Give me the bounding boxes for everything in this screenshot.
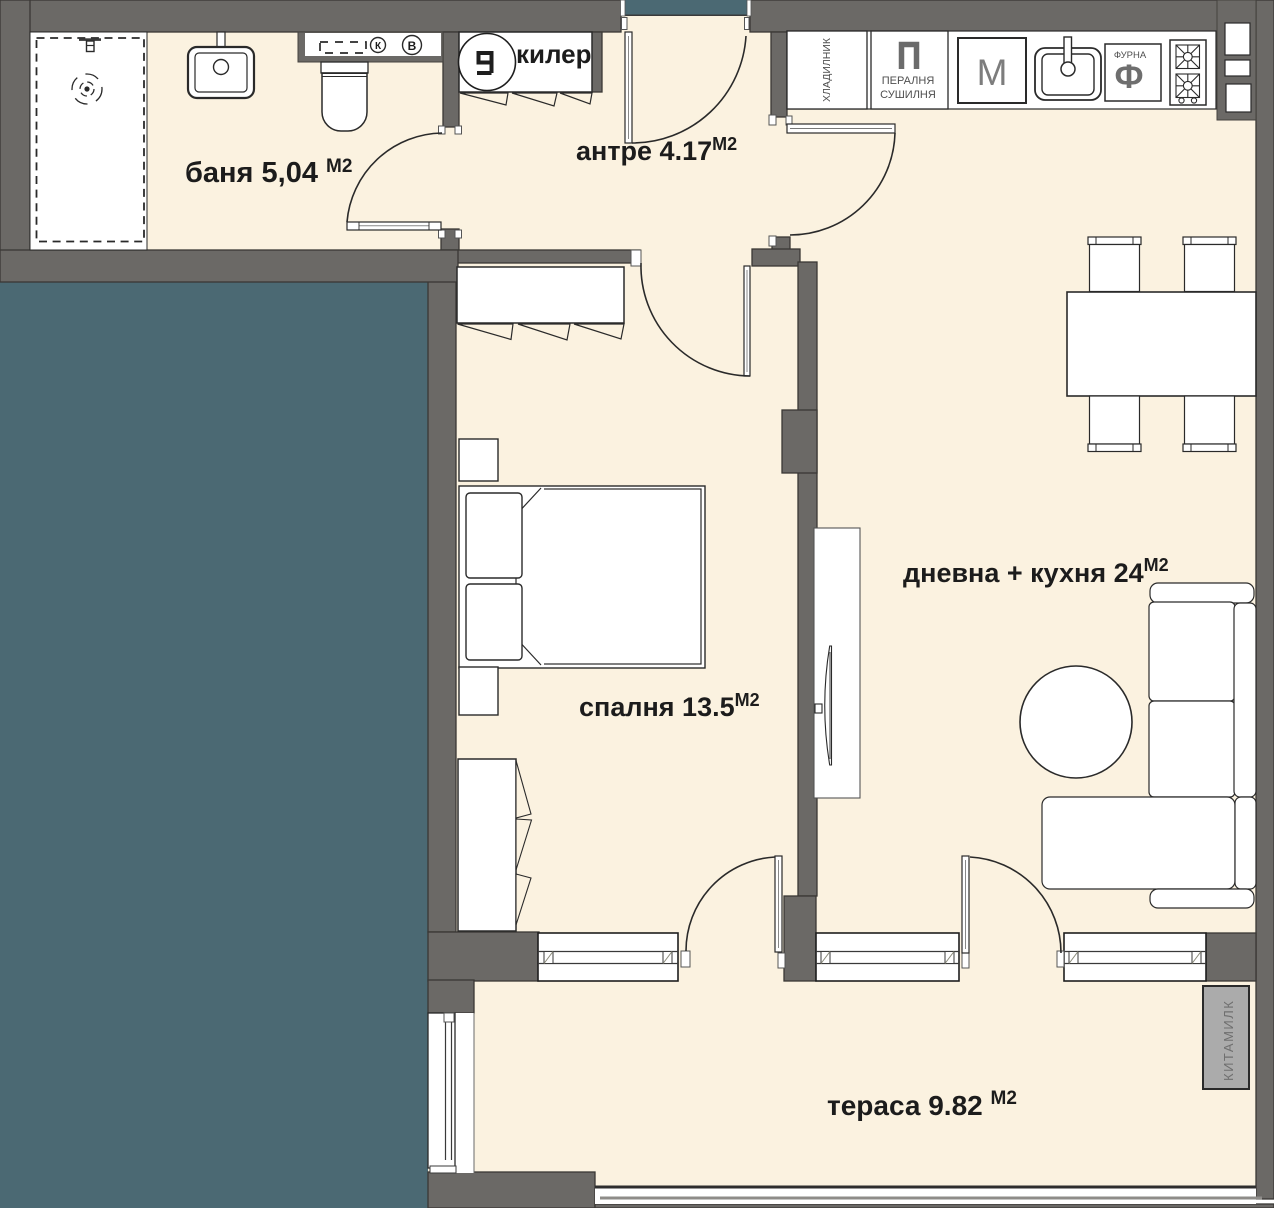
svg-text:килер: килер [516,39,592,69]
svg-text:КИТАМИЛК: КИТАМИЛК [1221,1000,1236,1081]
svg-text:спалня 13.5М2: спалня 13.5М2 [579,690,760,722]
svg-text:Ф: Ф [1114,58,1143,96]
svg-text:В: В [408,39,417,53]
svg-text:К: К [375,41,382,52]
svg-text:дневна + кухня 24М2: дневна + кухня 24М2 [903,555,1169,588]
svg-text:СУШИЛНЯ: СУШИЛНЯ [880,89,936,101]
svg-text:М: М [977,52,1008,93]
svg-text:ПЕРАЛНЯ: ПЕРАЛНЯ [882,75,935,87]
svg-text:тераса 9.82 М2: тераса 9.82 М2 [827,1088,1017,1121]
svg-text:ХЛАДИЛНИК: ХЛАДИЛНИК [821,37,833,102]
